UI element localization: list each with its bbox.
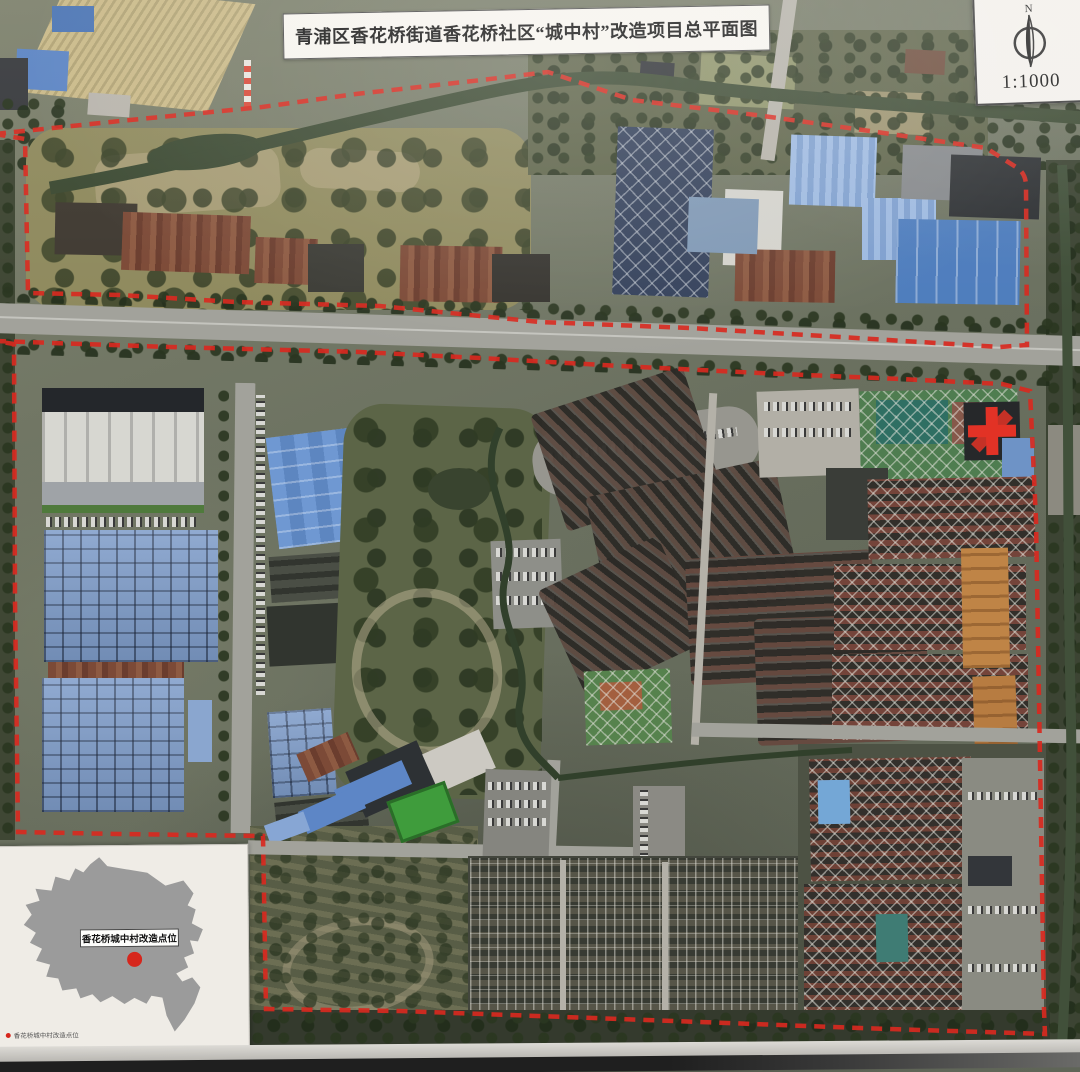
parking-row <box>968 906 1038 914</box>
factory-roof <box>895 219 1020 305</box>
tree-belt <box>1046 160 1080 1060</box>
parking-row <box>46 517 198 527</box>
factory-roof <box>735 249 836 303</box>
legend-dot-icon <box>6 1032 11 1037</box>
north-arrow-icon <box>999 12 1061 70</box>
parking-row <box>496 572 556 581</box>
pond <box>428 468 490 510</box>
factory-roof <box>42 388 204 414</box>
compound-fence <box>867 477 1035 560</box>
factory-roof <box>42 482 204 506</box>
factory-roof <box>949 154 1041 219</box>
building-roof <box>639 61 674 85</box>
roadside-trees <box>216 388 229 830</box>
court-fence <box>584 669 673 746</box>
lawn-strip <box>42 505 204 513</box>
factory-roof <box>687 197 759 254</box>
parking-row <box>488 818 546 826</box>
plan-title: 青浦区香花桥街道香花桥社区“城中村”改造项目总平面图 <box>295 15 758 49</box>
factory-roof <box>42 678 184 812</box>
swimming-pool <box>818 780 851 825</box>
building-roof <box>1002 438 1034 480</box>
building-roof <box>87 93 130 118</box>
parking-row <box>968 792 1038 800</box>
orange-roof-building <box>961 548 1010 669</box>
photographed-plan-poster: 青浦区香花桥街道香花桥社区“城中村”改造项目总平面图 N 1:1000 香花桥城… <box>0 0 1080 1072</box>
building-roof <box>52 6 94 32</box>
building-roof <box>968 856 1012 886</box>
district-silhouette <box>0 845 249 1052</box>
project-location-dot <box>127 952 142 967</box>
plan-title-bar: 青浦区香花桥街道香花桥社区“城中村”改造项目总平面图 <box>283 5 771 60</box>
tree-cluster <box>252 830 477 1015</box>
factory-roof <box>121 212 251 274</box>
factory-roof <box>492 254 550 302</box>
parking-row <box>764 402 854 411</box>
parking-row <box>488 800 546 808</box>
north-scale-box: N 1:1000 <box>972 0 1080 106</box>
factory-roof <box>42 412 204 484</box>
inset-legend: 香花桥城中村改造点位 <box>6 1029 79 1040</box>
inset-legend-label: 香花桥城中村改造点位 <box>14 1029 79 1040</box>
tree-belt <box>0 140 15 840</box>
buildings-offsite <box>1048 425 1080 515</box>
factory-roof <box>400 245 503 303</box>
inset-locator-map: 香花桥城中村改造点位 香花桥城中村改造点位 <box>0 844 250 1052</box>
campus-road <box>231 383 256 833</box>
scale-label: 1:1000 <box>1001 70 1061 94</box>
building-roof <box>188 700 212 762</box>
parking-row <box>968 964 1038 972</box>
basketball-court <box>876 914 909 963</box>
inset-callout-label: 香花桥城中村改造点位 <box>80 929 179 948</box>
transmission-tower <box>244 60 251 108</box>
parking-row <box>496 548 556 557</box>
parking-row <box>764 428 854 437</box>
factory-roof <box>308 244 364 292</box>
factory-roof <box>48 662 184 678</box>
building-roof <box>904 49 945 75</box>
parking-row <box>488 782 546 790</box>
parking-row <box>256 395 265 695</box>
factory-roof <box>789 135 877 208</box>
factory-roof <box>44 530 218 662</box>
